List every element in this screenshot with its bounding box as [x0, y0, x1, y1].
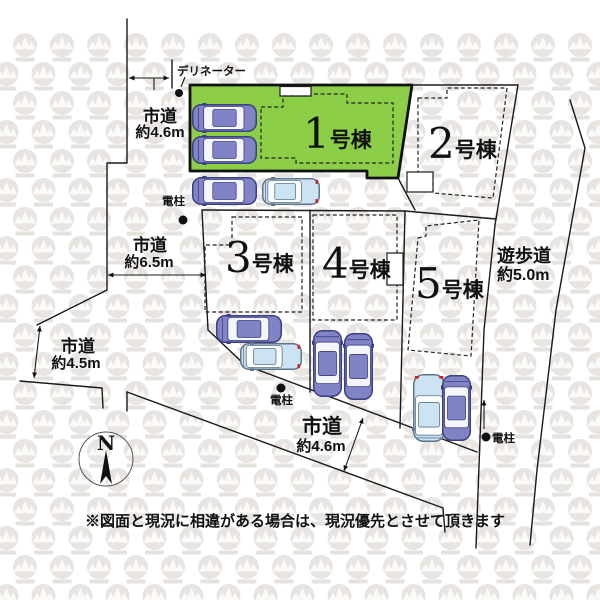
watermark-text-bar [460, 116, 479, 120]
watermark-text-bar [0, 261, 16, 265]
watermark-text-bar [571, 522, 590, 526]
watermark-text-bar [201, 464, 220, 468]
watermark-text-bar [312, 406, 331, 410]
watermark-text-bar [386, 406, 405, 410]
watermark-text-bar [589, 493, 600, 497]
watermark-text-bar [164, 174, 183, 178]
watermark-text-bar [478, 203, 497, 207]
watermark-text-bar [71, 377, 90, 381]
watermark-text-bar [71, 203, 90, 207]
watermark-text-bar [367, 493, 386, 497]
watermark-text-bar [460, 464, 479, 468]
watermark-text-bar [478, 493, 497, 497]
watermark-text-bar [571, 58, 590, 62]
watermark-text-bar [182, 493, 201, 497]
watermark-text-bar [0, 203, 16, 207]
watermark-text-bar [53, 174, 72, 178]
utility-pole-dot-1 [179, 216, 188, 225]
watermark-text-bar [330, 203, 349, 207]
watermark-text-bar [34, 435, 53, 439]
watermark-text-bar [534, 116, 553, 120]
watermark-text-bar [34, 87, 53, 91]
delineator-dot [175, 89, 183, 97]
watermark-text-bar [423, 580, 442, 584]
watermark-text-bar [182, 435, 201, 439]
watermark-text-bar [275, 464, 294, 468]
utility-pole-dot-2 [277, 384, 286, 393]
watermark-text-bar [53, 290, 72, 294]
watermark-text-bar [349, 290, 368, 294]
watermark-text-bar [534, 464, 553, 468]
watermark-text-bar [108, 203, 127, 207]
watermark-text-bar [16, 290, 35, 294]
watermark-text-bar [34, 203, 53, 207]
watermark-text-bar [460, 348, 479, 352]
watermark-text-bar [386, 58, 405, 62]
watermark-text-bar [515, 203, 534, 207]
watermark-text-bar [71, 493, 90, 497]
watermark-text-bar [441, 203, 460, 207]
watermark-text-bar [53, 58, 72, 62]
watermark-text-bar [571, 348, 590, 352]
watermark-text-bar [238, 58, 257, 62]
road-left-name: 市道 [133, 235, 167, 255]
watermark-text-bar [349, 174, 368, 178]
van-illustration [412, 375, 446, 442]
watermark-text-bar [34, 493, 53, 497]
watermark-text-bar [423, 464, 442, 468]
watermark-text-bar [71, 551, 90, 555]
watermark-text-bar [367, 319, 386, 323]
watermark-text-bar [90, 174, 109, 178]
watermark-text-bar [552, 435, 571, 439]
watermark-text-bar [108, 493, 127, 497]
watermark-text-bar [515, 493, 534, 497]
watermark-text-bar [497, 232, 516, 236]
watermark-text-bar [478, 551, 497, 555]
watermark-text-bar [164, 58, 183, 62]
watermark-text-bar [571, 232, 590, 236]
watermark-text-bar [90, 406, 109, 410]
watermark-text-bar [275, 174, 294, 178]
watermark-text-bar [275, 58, 294, 62]
watermark-text-bar [145, 435, 164, 439]
watermark-text-bar [90, 232, 109, 236]
watermark-text-bar [460, 58, 479, 62]
watermark-text-bar [386, 464, 405, 468]
watermark-text-bar [108, 377, 127, 381]
walkway-width: 約5.0m [497, 265, 549, 284]
watermark-text-bar [127, 348, 146, 352]
sedan-illustration [193, 135, 257, 165]
watermark-text-bar [201, 348, 220, 352]
arrowhead-icon [359, 418, 364, 424]
watermark-text-bar [90, 58, 109, 62]
watermark-text-bar [127, 580, 146, 584]
watermark-text-bar [589, 261, 600, 265]
road-left-width: 約6.5m [124, 253, 173, 271]
watermark-text-bar [0, 435, 16, 439]
watermark-text-bar [238, 174, 257, 178]
watermark-text-bar [571, 406, 590, 410]
watermark-text-bar [589, 145, 600, 149]
watermark-text-bar [127, 174, 146, 178]
watermark-text-bar [238, 580, 257, 584]
watermark-text-bar [534, 406, 553, 410]
watermark-text-bar [552, 551, 571, 555]
watermark-text-bar [238, 464, 257, 468]
site-plan-page: N 1号棟 2号棟 3号棟 4号棟 5号棟 市道 約4.6m 市道 約6.5m … [0, 0, 600, 600]
watermark-text-bar [534, 522, 553, 526]
watermark-text-bar [34, 145, 53, 149]
watermark-text-bar [534, 58, 553, 62]
watermark-text-bar [589, 435, 600, 439]
watermark-text-bar [108, 551, 127, 555]
watermark-text-bar [589, 87, 600, 91]
watermark-text-bar [404, 551, 423, 555]
watermark-text-bar [515, 145, 534, 149]
road-bottom-left-width: 約4.5m [51, 354, 100, 372]
watermark-text-bar [312, 174, 331, 178]
utility-pole-label-2: 電柱 [270, 393, 293, 407]
watermark-text-bar [90, 116, 109, 120]
watermark-text-bar [441, 261, 460, 265]
sedan-illustration [217, 314, 282, 344]
watermark-text-bar [589, 203, 600, 207]
watermark-text-bar [312, 290, 331, 294]
watermark-text-bar [367, 551, 386, 555]
utility-pole-dot-3 [482, 433, 491, 442]
watermark-text-bar [182, 377, 201, 381]
watermark-text-bar [219, 493, 238, 497]
watermark-text-bar [552, 87, 571, 91]
watermark-text-bar [589, 551, 600, 555]
watermark-text-bar [16, 580, 35, 584]
watermark-text-bar [275, 232, 294, 236]
van-illustration [263, 177, 320, 206]
watermark-text-bar [423, 58, 442, 62]
watermark-text-bar [90, 580, 109, 584]
road-bottom-name: 市道 [302, 414, 342, 438]
watermark-text-bar [534, 232, 553, 236]
road-bottom-width: 約4.6m [296, 437, 345, 455]
watermark-text-bar [201, 58, 220, 62]
watermark-text-bar [71, 87, 90, 91]
watermark-text-bar [349, 58, 368, 62]
watermark-text-bar [571, 116, 590, 120]
watermark-text-bar [552, 493, 571, 497]
watermark-text-bar [515, 435, 534, 439]
watermark-text-bar [53, 580, 72, 584]
watermark-text-bar [534, 174, 553, 178]
watermark-text-bar [53, 406, 72, 410]
watermark-text-bar [145, 551, 164, 555]
sedan-illustration [441, 376, 472, 441]
watermark-text-bar [460, 580, 479, 584]
watermark-text-bar [497, 348, 516, 352]
van-illustration [241, 342, 302, 371]
watermark-text-bar [552, 261, 571, 265]
lot-1-top-notch [280, 87, 311, 97]
watermark-text-bar [275, 290, 294, 294]
watermark-text-bar [238, 290, 257, 294]
sedan-illustration [193, 103, 257, 133]
watermark-text-bar [108, 87, 127, 91]
watermark-text-bar [293, 493, 312, 497]
watermark-text-bar [441, 319, 460, 323]
watermark-text-bar [71, 145, 90, 149]
watermark-text-bar [238, 406, 257, 410]
watermark-text-bar [256, 435, 275, 439]
walkway-name: 遊歩道 [497, 245, 551, 266]
disclaimer-text: ※図面と現況に相違がある場合は、現況優先とさせて頂きます [85, 512, 505, 530]
watermark-text-bar [127, 464, 146, 468]
watermark-text-bar [515, 551, 534, 555]
watermark-text-bar [182, 319, 201, 323]
watermark-text-bar [182, 261, 201, 265]
watermark-text-bar [349, 232, 368, 236]
watermark-text-bar [423, 348, 442, 352]
watermark-text-bar [0, 87, 16, 91]
watermark-text-bar [16, 522, 35, 526]
watermark-text-bar [256, 551, 275, 555]
watermark-text-bar [145, 493, 164, 497]
watermark-text-bar [460, 174, 479, 178]
watermark-text-bar [293, 377, 312, 381]
watermark-text-bar [312, 232, 331, 236]
delineator-label: デリネーター [177, 64, 246, 78]
watermark-text-bar [386, 580, 405, 584]
watermark-text-bar [164, 464, 183, 468]
watermark-text-bar [534, 348, 553, 352]
arrowhead-icon [482, 400, 487, 405]
watermark-text-bar [571, 580, 590, 584]
watermark-text-bar [293, 551, 312, 555]
road-bottom-left-name: 市道 [61, 336, 95, 356]
watermark-text-bar [404, 145, 423, 149]
watermark-text-bar [16, 464, 35, 468]
watermark-text-bar [164, 580, 183, 584]
watermark-text-bar [349, 580, 368, 584]
watermark-text-bar [367, 435, 386, 439]
watermark-text-bar [386, 290, 405, 294]
watermark-text-bar [0, 377, 16, 381]
watermark-text-bar [16, 58, 35, 62]
watermark-text-bar [256, 377, 275, 381]
sedan-illustration [343, 334, 374, 400]
watermark-text-bar [312, 58, 331, 62]
watermark-text-bar [589, 377, 600, 381]
watermark-text-bar [552, 145, 571, 149]
watermark-text-bar [404, 319, 423, 323]
watermark-text-bar [497, 464, 516, 468]
watermark-text-bar [256, 493, 275, 497]
watermark-text-bar [293, 319, 312, 323]
watermark-text-bar [71, 261, 90, 265]
watermark-text-bar [34, 551, 53, 555]
sedan-illustration [193, 176, 257, 206]
watermark-text-bar [16, 174, 35, 178]
watermark-text-bar [71, 435, 90, 439]
watermark-text-bar [34, 377, 53, 381]
watermark-text-bar [127, 232, 146, 236]
watermark-text-bar [0, 551, 16, 555]
watermark-text-bar [330, 551, 349, 555]
site-plan-drawing: N 1号棟 2号棟 3号棟 4号棟 5号棟 市道 約4.6m 市道 約6.5m … [0, 0, 600, 600]
watermark-text-bar [219, 435, 238, 439]
watermark-text-bar [127, 58, 146, 62]
watermark-text-bar [0, 493, 16, 497]
watermark-text-bar [127, 406, 146, 410]
watermark-text-bar [497, 406, 516, 410]
watermark-text-bar [201, 580, 220, 584]
watermark-text-bar [367, 203, 386, 207]
watermark-text-bar [571, 464, 590, 468]
watermark-text-bar [108, 145, 127, 149]
watermark-text-bar [34, 261, 53, 265]
watermark-text-bar [16, 406, 35, 410]
watermark-text-bar [478, 261, 497, 265]
watermark-text-bar [497, 174, 516, 178]
watermark-text-bar [145, 145, 164, 149]
watermark-text-bar [515, 377, 534, 381]
watermark-text-bar [53, 232, 72, 236]
watermark-text-bar [53, 522, 72, 526]
watermark-text-bar [589, 319, 600, 323]
watermark-text-bar [164, 348, 183, 352]
watermark-text-bar [16, 116, 35, 120]
watermark-text-bar [145, 377, 164, 381]
watermark-text-bar [0, 319, 16, 323]
watermark-text-bar [497, 580, 516, 584]
watermark-text-bar [330, 493, 349, 497]
watermark-text-bar [201, 406, 220, 410]
watermark-text-bar [164, 290, 183, 294]
watermark-text-bar [423, 232, 442, 236]
watermark-text-bar [386, 232, 405, 236]
watermark-text-bar [441, 551, 460, 555]
sedan-illustration [312, 331, 343, 397]
utility-pole-label-1: 電柱 [162, 194, 185, 208]
watermark-text-bar [534, 290, 553, 294]
road-top-left-name: 市道 [143, 106, 177, 126]
utility-pole-label-3: 電柱 [492, 431, 515, 445]
watermark-text-bar [182, 551, 201, 555]
watermark-text-bar [349, 464, 368, 468]
watermark-text-bar [108, 319, 127, 323]
watermark-text-bar [145, 319, 164, 323]
watermark-text-bar [497, 58, 516, 62]
watermark-text-bar [53, 116, 72, 120]
watermark-text-bar [201, 290, 220, 294]
watermark-text-bar [478, 319, 497, 323]
road-top-left-width: 約4.6m [135, 123, 184, 141]
watermark-text-bar [71, 319, 90, 323]
lot-2-small-structure [407, 172, 433, 192]
watermark-text-bar [497, 290, 516, 294]
watermark-text-bar [552, 377, 571, 381]
watermark-text-bar [460, 232, 479, 236]
watermark-text-bar [219, 377, 238, 381]
watermark-text-bar [219, 551, 238, 555]
watermark-text-bar [552, 203, 571, 207]
watermark-text-bar [53, 464, 72, 468]
watermark-text-bar [534, 580, 553, 584]
watermark-text-bar [441, 493, 460, 497]
watermark-text-bar [164, 232, 183, 236]
watermark-text-bar [127, 290, 146, 294]
arrowhead-icon [129, 76, 134, 81]
watermark-text-bar [0, 145, 16, 149]
watermark-text-bar [275, 580, 294, 584]
watermark-text-bar [515, 319, 534, 323]
watermark-text-bar [16, 348, 35, 352]
watermark-text-bar [312, 580, 331, 584]
watermark-text-bar [571, 290, 590, 294]
watermark-text-bar [478, 377, 497, 381]
watermark-text-bar [16, 232, 35, 236]
